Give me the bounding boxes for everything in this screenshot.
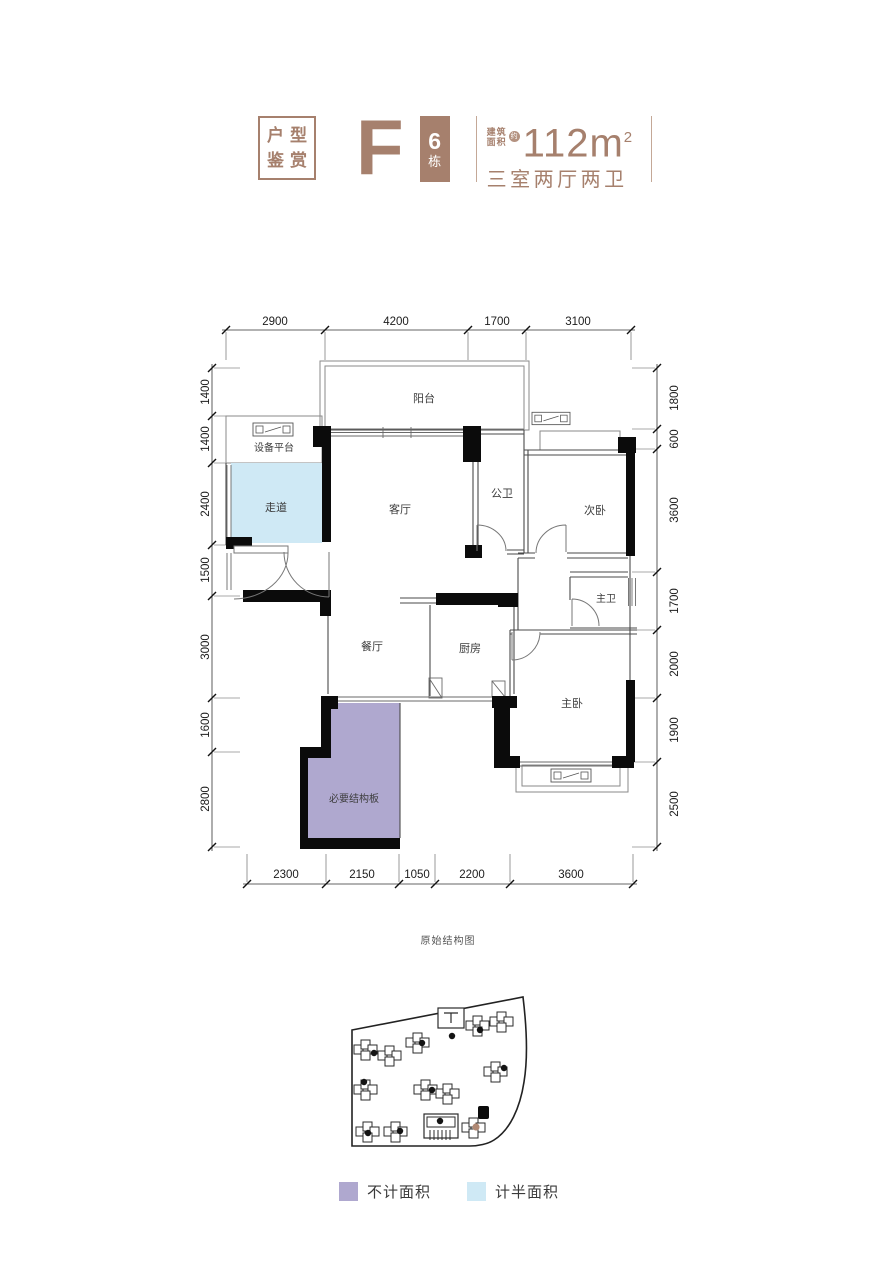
- label-dining: 餐厅: [361, 639, 383, 653]
- label-kitchen: 厨房: [459, 642, 481, 655]
- label-second-bed: 次卧: [584, 503, 606, 517]
- dim-chain-top: 2900 4200 1700 3100: [222, 316, 635, 360]
- svg-text:2500: 2500: [669, 791, 681, 817]
- label-equipment: 设备平台: [254, 441, 294, 454]
- layout-description: 三室两厅两卫: [487, 163, 639, 192]
- svg-text:3600: 3600: [669, 497, 681, 523]
- label-balcony: 阳台: [413, 391, 435, 405]
- area-sup: 2: [624, 129, 633, 146]
- master-bath-door-arc: [572, 599, 599, 626]
- svg-text:1400: 1400: [200, 379, 212, 405]
- area-number: 112m: [523, 121, 624, 165]
- header-divider-right: [651, 116, 652, 182]
- approx-badge: 约: [509, 131, 520, 142]
- svg-text:3000: 3000: [200, 634, 212, 660]
- legend-item-no-area: 不计面积: [339, 1181, 431, 1202]
- area-value: 112m2: [523, 118, 633, 163]
- building-badge: 6 栋: [420, 116, 450, 182]
- svg-text:2800: 2800: [200, 786, 212, 812]
- label-master-bath: 主卫: [596, 593, 616, 605]
- ac-platform-bed2-zone: [540, 431, 620, 450]
- second-bed-door-arc: [536, 525, 566, 553]
- svg-text:2150: 2150: [349, 869, 375, 881]
- area-label: 建筑 面积: [487, 127, 507, 147]
- svg-text:2200: 2200: [459, 869, 485, 881]
- svg-text:1400: 1400: [200, 426, 212, 452]
- half-area-swatch: [467, 1182, 486, 1201]
- svg-text:2900: 2900: [262, 316, 288, 328]
- svg-text:1050: 1050: [404, 869, 430, 881]
- label-corridor: 走道: [265, 500, 287, 514]
- svg-text:1700: 1700: [484, 316, 510, 328]
- svg-text:1900: 1900: [669, 717, 681, 743]
- master-bed-door-arc: [512, 632, 540, 660]
- area-label-line1: 建筑: [487, 127, 507, 137]
- entry-side-window: [227, 553, 231, 590]
- building-suffix: 栋: [428, 155, 441, 169]
- svg-text:1700: 1700: [669, 588, 681, 614]
- ac-unit-icon: [253, 423, 293, 436]
- entry-door-leaf: [234, 546, 288, 553]
- ac-unit-icon: [532, 412, 570, 424]
- label-structure: 必要结构板: [329, 792, 379, 805]
- building-number: 6: [428, 130, 441, 152]
- series-tag-box: 户型 鉴赏: [258, 116, 316, 180]
- series-tag-line1: 户型: [261, 123, 313, 148]
- svg-text:2400: 2400: [200, 491, 212, 517]
- poster-page: 户型 鉴赏 F 6 栋 建筑 面积 约 112m2 三室两厅两卫: [0, 0, 877, 1280]
- no-area-swatch: [339, 1182, 358, 1201]
- svg-text:1500: 1500: [200, 557, 212, 583]
- floor-plan: 2900 4200 1700 3100 1400 1400 2400 1500 …: [185, 295, 690, 895]
- series-tag-line2: 鉴赏: [261, 148, 313, 173]
- svg-text:600: 600: [669, 429, 681, 448]
- dim-chain-right: 1800 600 3600 1700 2000 1900 2500: [632, 364, 681, 851]
- svg-text:4200: 4200: [383, 316, 409, 328]
- highlight-block: [478, 1106, 489, 1119]
- legend-item-half-area: 计半面积: [467, 1181, 559, 1202]
- dining-kitchen-window: [332, 697, 492, 701]
- dim-chain-bottom: 2300 2150 1050 2200 3600: [243, 854, 637, 888]
- legend: 不计面积 计半面积: [339, 1181, 559, 1202]
- svg-text:3100: 3100: [565, 316, 591, 328]
- corridor-window: [227, 465, 231, 537]
- unit-letter: F: [356, 116, 404, 182]
- balcony-slider: [331, 427, 463, 438]
- svg-text:1600: 1600: [200, 712, 212, 738]
- header-divider-left: [476, 116, 477, 182]
- legend-label: 计半面积: [495, 1181, 559, 1202]
- svg-text:3600: 3600: [558, 869, 584, 881]
- unit-info: 建筑 面积 约 112m2 三室两厅两卫: [487, 116, 639, 182]
- area-row: 建筑 面积 约 112m2: [487, 118, 639, 163]
- svg-text:2000: 2000: [669, 651, 681, 677]
- label-public-bath: 公卫: [491, 488, 513, 500]
- svg-text:2300: 2300: [273, 869, 299, 881]
- label-living: 客厅: [389, 502, 411, 516]
- current-building-marker: [472, 1123, 479, 1130]
- header: 户型 鉴赏 F 6 栋 建筑 面积 约 112m2 三室两厅两卫: [258, 116, 652, 182]
- dim-chain-left: 1400 1400 2400 1500 3000 1600 2800: [200, 364, 240, 851]
- area-label-line2: 面积: [487, 137, 507, 147]
- plan-caption: 原始结构图: [388, 932, 508, 947]
- label-master-bed: 主卧: [561, 697, 583, 710]
- structure-board-zone: [306, 703, 400, 845]
- legend-label: 不计面积: [367, 1181, 431, 1202]
- svg-text:1800: 1800: [669, 385, 681, 411]
- site-plan: [330, 983, 590, 1168]
- ac-unit-icon: [551, 769, 591, 782]
